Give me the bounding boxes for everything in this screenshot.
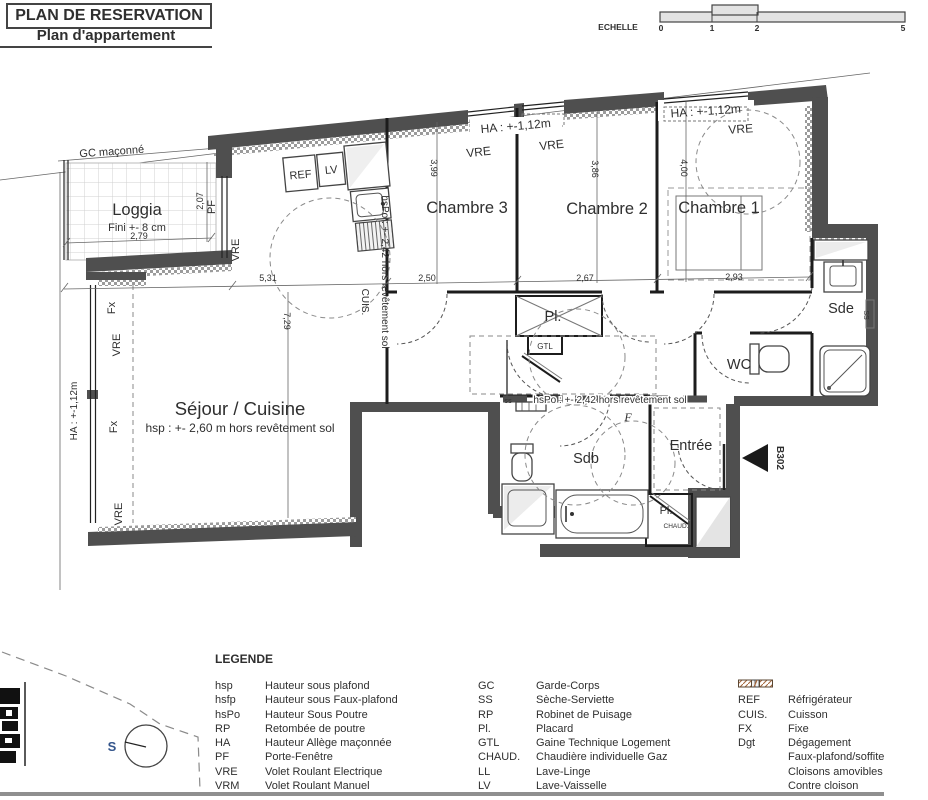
chaud-label: CHAUD. xyxy=(664,523,689,530)
kitchen-fixtures: REF LV xyxy=(282,142,396,257)
room-label-wc: WC xyxy=(727,357,751,373)
gc-maconne-label: GC maçonné xyxy=(79,144,144,160)
dim-ch3-w: 2,50 xyxy=(418,273,436,283)
dim-ch2-h: 3,86 xyxy=(590,160,600,178)
unit-arrow-icon xyxy=(742,444,768,472)
sdb-toilet-tank xyxy=(511,444,533,453)
entree-closet-walls xyxy=(646,494,692,546)
wc-fixtures xyxy=(750,344,789,374)
sejour-note: hsp : +- 2,60 m hors revêtement sol xyxy=(145,421,334,435)
lv-label: LV xyxy=(324,164,338,177)
page-title: PLAN DE RESERVATION xyxy=(15,7,203,25)
sdb-toilet xyxy=(512,453,532,481)
hspo-vertical: hsPo : +- 2,42 hors revêtement sol xyxy=(379,195,390,348)
ss-label-sde: SS xyxy=(862,310,869,320)
ha-label-left: HA : +-1,12m xyxy=(69,382,80,441)
scale-tick-2: 2 xyxy=(755,23,760,33)
floor-plan-page: REF LV xyxy=(0,0,928,800)
bottom-rule xyxy=(0,792,884,796)
page-subtitle: Plan d'appartement xyxy=(0,27,212,44)
fx-label-1: Fx xyxy=(106,301,118,314)
vre-label-left2: VRE xyxy=(113,503,125,526)
cuis-label: CUIS. xyxy=(359,289,370,316)
gtl-label: GTL xyxy=(537,342,553,351)
vre-label-ch1: VRE xyxy=(728,121,754,137)
sde-fixtures xyxy=(820,260,874,396)
room-label-sde: Sde xyxy=(828,301,854,317)
room-label-chambre1: Chambre 1 xyxy=(678,199,760,217)
vre-label-loggia: VRE xyxy=(230,239,242,262)
room-label-sejour: Séjour / Cuisine xyxy=(175,398,306,419)
vre-label-left1: VRE xyxy=(111,334,123,357)
room-label-entree: Entrée xyxy=(670,438,713,454)
vre-label-ch2: VRE xyxy=(539,137,565,154)
dim-loggia-h: 2,07 xyxy=(195,192,205,210)
title-rule xyxy=(0,46,212,48)
wc-tank xyxy=(750,344,759,374)
f-tag: F xyxy=(623,410,632,424)
fx-label-2: Fx xyxy=(108,420,120,433)
scale-bar: ECHELLE 0 1 2 5 xyxy=(598,5,905,33)
dim-ch1-w: 2,93 xyxy=(725,272,743,282)
ss-radiator-label: ss xyxy=(504,396,512,405)
wc-toilet xyxy=(759,346,789,372)
pf-label: PF xyxy=(206,200,218,214)
unit-label: B302 xyxy=(774,446,785,470)
compass-circle xyxy=(125,725,167,767)
scale-label: ECHELLE xyxy=(598,22,638,32)
title-box: PLAN DE RESERVATION xyxy=(6,3,212,29)
dim-ch1-h: 4,00 xyxy=(679,159,689,177)
unit-marker: B302 xyxy=(742,444,785,472)
dim-ch2-w: 2,67 xyxy=(576,273,594,283)
room-label-loggia: Loggia xyxy=(112,201,162,219)
scale-tick-0: 0 xyxy=(659,23,664,33)
scale-tick-5: 5 xyxy=(901,23,906,33)
dim-sejour-w: 5,31 xyxy=(259,273,277,283)
room-label-sdb: Sdb xyxy=(573,451,599,467)
room-label-chambre3: Chambre 3 xyxy=(426,199,508,217)
room-label-chambre2: Chambre 2 xyxy=(566,200,648,218)
floor-plan-drawing: REF LV xyxy=(0,0,928,800)
compass: S xyxy=(108,725,167,767)
dim-loggia-w: 2,79 xyxy=(130,231,148,241)
site-minimap xyxy=(0,652,200,790)
compass-south-label: S xyxy=(108,739,117,754)
hspo-horizontal: hsPo : +- 2,42 hors revêtement sol xyxy=(533,395,686,406)
room-label-placard-entree: Pl. xyxy=(660,505,673,517)
scale-tick-1: 1 xyxy=(710,23,715,33)
vre-label-ch3: VRE xyxy=(466,144,492,161)
dim-sejour-h: 7,29 xyxy=(282,312,292,330)
room-label-placard-hall: Pl. xyxy=(545,309,562,325)
dim-ch3-h: 3,99 xyxy=(429,159,439,177)
ref-label: REF xyxy=(289,168,312,182)
